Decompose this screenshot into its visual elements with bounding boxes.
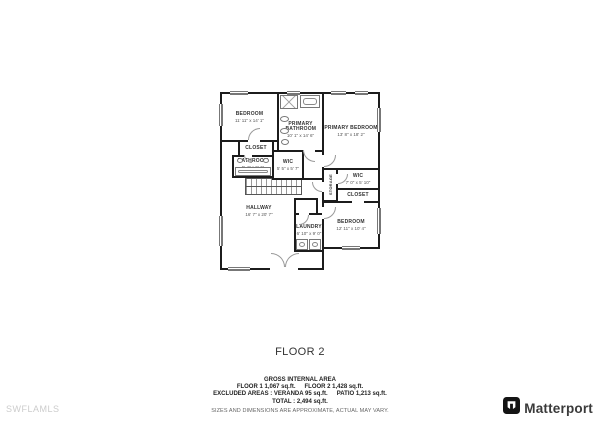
total-area: TOTAL : 2,494 sq.ft. — [272, 399, 328, 406]
floor-title: FLOOR 2 — [0, 346, 600, 358]
room-label: PRIMARY BEDROOM — [324, 126, 377, 131]
sink-fixture — [280, 116, 289, 122]
shower-fixture — [280, 95, 298, 109]
room-label: BEDROOM — [236, 112, 264, 117]
room-dims: 10' 1" x 14' 6" — [287, 133, 314, 138]
room-dims: 11' 11" x 14' 1" — [235, 118, 264, 123]
window — [331, 91, 346, 95]
sink-fixture — [237, 158, 243, 163]
room-label: BEDROOM — [337, 220, 365, 225]
window — [219, 216, 223, 246]
disclaimer-text: SIZES AND DIMENSIONS ARE APPROXIMATE, AC… — [211, 408, 389, 414]
matterport-wordmark: Matterport — [524, 401, 593, 416]
washer-fixture — [296, 239, 308, 250]
room-dims: 5' 5" x 5' 7" — [277, 166, 299, 171]
window — [219, 104, 223, 126]
room-label: CLOSET — [245, 146, 266, 151]
window — [377, 208, 381, 234]
room-dims: 6' 10" x 9' 0" — [297, 231, 322, 236]
window — [230, 91, 248, 95]
area-heading: GROSS INTERNAL AREA — [264, 377, 336, 384]
room-label: HALLWAY — [246, 206, 271, 211]
room-label: WIC — [353, 174, 363, 179]
bathtub-fixture — [300, 95, 320, 108]
room-label: STORAGE — [328, 174, 333, 195]
door-gap — [352, 201, 364, 203]
floorplan-page: HALLWAY 16' 7" x 20' 7" BEDROOM 11' 11" … — [0, 0, 600, 424]
door-gap — [248, 140, 260, 142]
room-label: CLOSET — [347, 193, 368, 198]
window — [342, 246, 360, 250]
room-hallway: HALLWAY 16' 7" x 20' 7" — [224, 202, 294, 220]
stair-rail — [245, 186, 302, 187]
room-dims: 13' 8" x 18' 2" — [337, 132, 364, 137]
room-dims: 7' 0" x 5' 10" — [346, 180, 371, 185]
area-line-floors: FLOOR 1 1,067 sq.ft. FLOOR 2 1,428 sq.ft… — [237, 384, 363, 391]
area-line-total: TOTAL : 2,494 sq.ft. — [272, 399, 328, 406]
room-label: WIC — [283, 160, 293, 165]
floor1-area: FLOOR 1 1,067 sq.ft. — [237, 384, 296, 391]
entry-door-gap — [270, 267, 298, 271]
area-line-excluded: EXCLUDED AREAS : VERANDA 95 sq.ft. PATIO… — [213, 391, 387, 398]
room-dims: 16' 7" x 20' 7" — [245, 212, 272, 217]
room-wic-middle: WIC 5' 5" x 5' 7" — [272, 150, 304, 180]
bathtub-fixture — [235, 167, 271, 176]
mls-watermark: SWFLAMLS — [6, 404, 60, 414]
room-dims: 12' 11" x 10' 4" — [336, 226, 365, 231]
excluded-patio: PATIO 1,213 sq.ft. — [337, 391, 387, 398]
window — [377, 108, 381, 132]
door-gap — [322, 182, 324, 192]
floor2-area: FLOOR 2 1,428 sq.ft. — [305, 384, 364, 391]
matterport-logo-icon — [503, 397, 520, 419]
window — [228, 267, 250, 271]
toilet-fixture — [263, 158, 269, 163]
room-label: LAUNDRY — [296, 225, 322, 230]
sink-fixture — [280, 128, 289, 134]
toilet-fixture — [281, 139, 289, 145]
excluded-veranda: EXCLUDED AREAS : VERANDA 95 sq.ft. — [213, 391, 328, 398]
matterport-brand: Matterport — [503, 397, 593, 419]
dryer-fixture — [309, 239, 321, 250]
room-label: PRIMARY BATHROOM — [286, 122, 316, 132]
window — [355, 91, 368, 95]
